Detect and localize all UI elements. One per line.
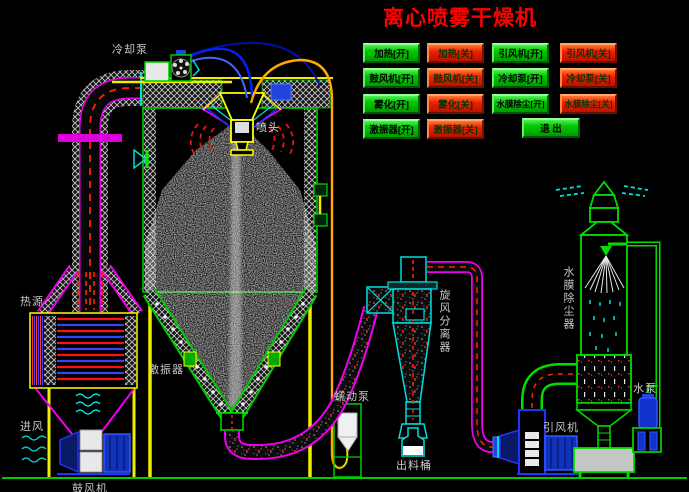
- label-cyclone-separator: 旋风分离器: [436, 289, 452, 354]
- label-water-film-dust-collector: 水膜除尘器: [560, 266, 576, 331]
- air-inlet-arrows: [22, 436, 46, 462]
- duct-flange: [58, 134, 122, 142]
- button-blower-on[interactable]: 鼓风机[开]: [363, 68, 420, 88]
- button-atomizer-on[interactable]: 雾化[开]: [363, 94, 420, 114]
- cyclone-separator: [367, 257, 437, 438]
- label-water-pump: 水泵: [633, 380, 657, 396]
- button-vibrator-on[interactable]: 激振器[开]: [363, 119, 420, 139]
- scada-screen: 离心喷雾干燥机 加热[开] 加热[关] 引风机[开] 引风机[关] 鼓风机[开]…: [0, 0, 689, 492]
- label-discharge-barrel: 出料桶: [396, 457, 432, 473]
- button-heating-off[interactable]: 加热[关]: [427, 43, 484, 63]
- cooling-tank: [145, 62, 169, 81]
- blower-fan: [57, 430, 130, 474]
- button-induced-fan-off[interactable]: 引风机[关]: [560, 43, 617, 63]
- water-tank: [574, 448, 634, 472]
- label-vibrator: 激振器: [148, 361, 184, 377]
- button-cooling-pump-on[interactable]: 冷却泵[开]: [492, 68, 549, 88]
- label-cooling-pump: 冷却泵: [112, 41, 148, 57]
- label-spray-head: 喷头: [256, 119, 280, 135]
- label-peristaltic-pump: 蠕动泵: [334, 388, 370, 404]
- button-water-film-dedust-off[interactable]: 水膜除尘[关]: [560, 94, 617, 114]
- vibrator-left: [184, 352, 196, 366]
- label-induced-draft-fan: 引风机: [543, 419, 579, 435]
- button-heating-on[interactable]: 加热[开]: [363, 43, 420, 63]
- button-atomizer-off[interactable]: 雾化[关]: [427, 94, 484, 114]
- button-vibrator-off[interactable]: 激振器[关]: [427, 119, 484, 139]
- label-blower: 鼓风机: [72, 480, 108, 492]
- label-heat-source: 热源: [20, 293, 44, 309]
- button-water-film-dedust-on[interactable]: 水膜除尘[开]: [492, 94, 549, 114]
- button-exit[interactable]: 退 出: [522, 118, 580, 138]
- water-pump: [627, 244, 661, 452]
- label-air-inlet: 进风: [20, 418, 44, 434]
- button-induced-fan-on[interactable]: 引风机[开]: [492, 43, 549, 63]
- button-blower-off[interactable]: 鼓风机[关]: [427, 68, 484, 88]
- button-cooling-pump-off[interactable]: 冷却泵[关]: [560, 68, 617, 88]
- vibrator-right: [268, 352, 280, 366]
- air-flow-marks: [76, 394, 100, 414]
- page-title: 离心喷雾干燥机: [383, 2, 537, 32]
